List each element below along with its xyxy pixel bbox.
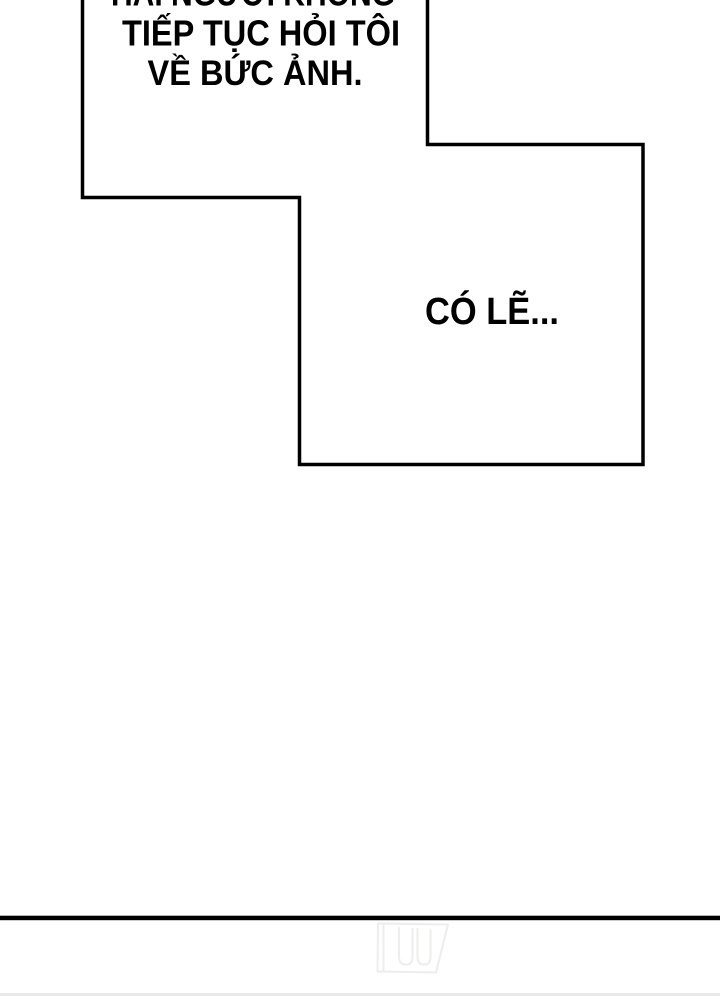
svg-text:HAI NGƯỜI KHÔNG: HAI NGƯỜI KHÔNG [111, 0, 395, 14]
svg-text:CÓ LẼ...: CÓ LẼ... [425, 289, 559, 333]
svg-text:VỀ BỨC ẢNH.: VỀ BỨC ẢNH. [148, 53, 363, 93]
svg-text:TIẾP TỤC HỎI TÔI: TIẾP TỤC HỎI TÔI [122, 12, 400, 54]
